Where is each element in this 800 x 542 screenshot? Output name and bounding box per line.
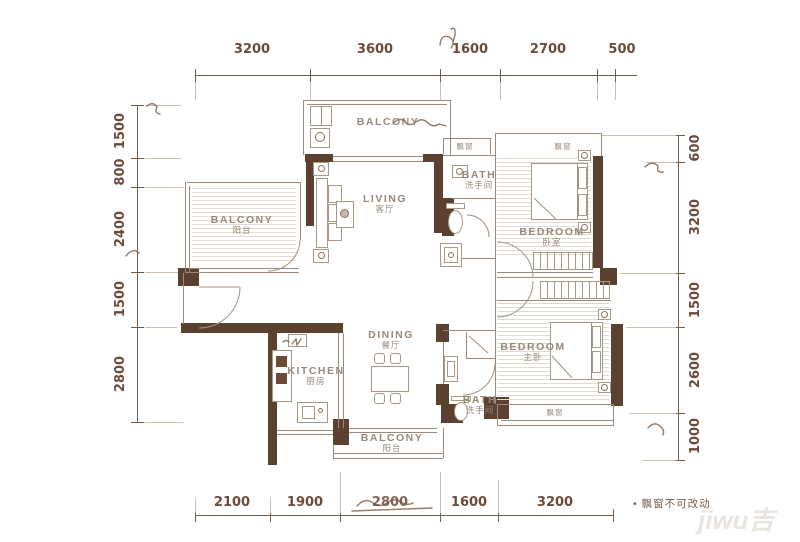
scribble: [126, 251, 139, 256]
room-label-bedroom-top: BEDROOM 卧室: [512, 226, 592, 248]
bay-window-label: 飘窗: [545, 141, 581, 152]
scribble: [440, 28, 455, 48]
room-label-bath-top: BATH 洗手间: [444, 169, 514, 191]
room-label-balcony-bottom: BALCONY 阳台: [352, 432, 432, 454]
entry-door-arc: [199, 287, 240, 328]
room-name-zh: 卧室: [512, 238, 592, 248]
room-name: BALCONY: [348, 116, 428, 128]
floor-plan-canvas: 3200 3600 1600 2700 500 1500 800 2400 15…: [0, 0, 800, 542]
balcony-door-arc: [268, 240, 300, 271]
room-name-zh: 厨房: [276, 377, 356, 387]
bath2-door-arc: [463, 363, 495, 395]
room-name-zh: 客厅: [345, 205, 425, 215]
room-label-bath-bottom: BATH 洗手间: [445, 394, 515, 416]
scribble: [645, 163, 663, 172]
watermark-logo: jiwu吉: [698, 500, 775, 537]
room-label-balcony-top: BALCONY: [348, 116, 428, 128]
room-name-zh: 阳台: [352, 444, 432, 454]
bed-fold-line: [534, 198, 556, 219]
room-label-dining: DINING 餐厅: [351, 329, 431, 351]
master-door-arc: [497, 281, 533, 317]
room-label-balcony-left: BALCONY 阳台: [202, 214, 282, 236]
bath-door-arc: [467, 215, 489, 237]
room-label-bedroom-master: BEDROOM 主卧: [493, 341, 573, 363]
room-name-zh: 主卧: [493, 353, 573, 363]
overlay-linework: [0, 0, 800, 542]
room-name-zh: 阳台: [202, 226, 282, 236]
bay-window-label: 飘窗: [447, 141, 483, 152]
scribble: [648, 424, 664, 435]
room-label-kitchen: KITCHEN 厨房: [276, 365, 356, 387]
room-name-zh: 餐厅: [351, 341, 431, 351]
scribble: [352, 500, 432, 511]
room-name-zh: 洗手间: [444, 181, 514, 191]
scribble: [147, 104, 160, 114]
scribble: [283, 339, 301, 345]
bay-window-label: 飘窗: [537, 407, 573, 418]
room-label-living: LIVING 客厅: [345, 193, 425, 215]
shower-door-diagonal: [469, 336, 488, 353]
room-name-zh: 洗手间: [445, 406, 515, 416]
